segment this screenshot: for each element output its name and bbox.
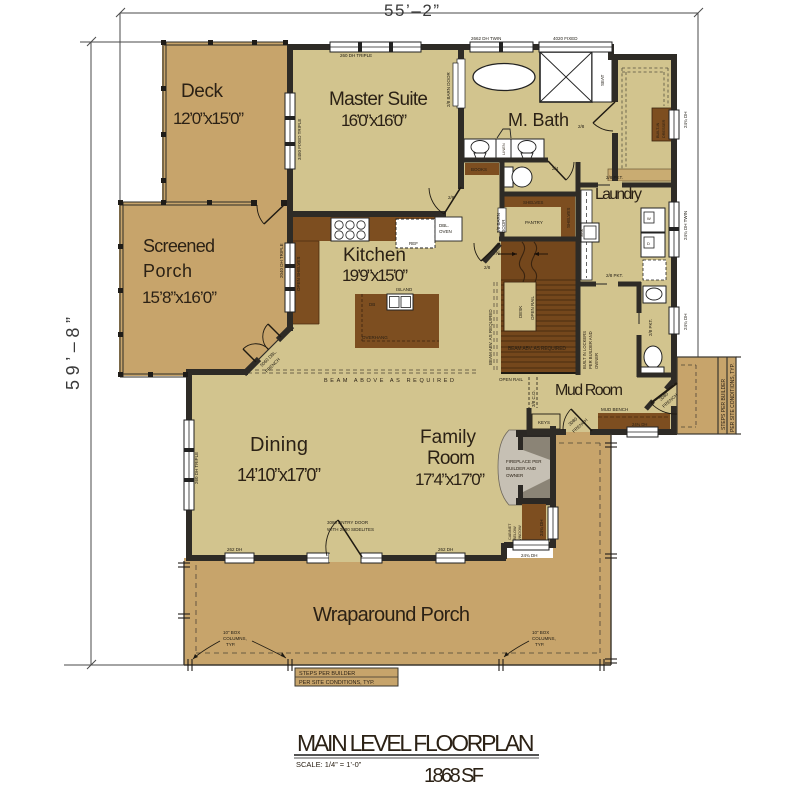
svg-text:OPEN SHELVES: OPEN SHELVES bbox=[296, 257, 301, 291]
svg-text:MAIN LEVEL FLOORPLAN: MAIN LEVEL FLOORPLAN bbox=[297, 730, 536, 756]
svg-text:DB: DB bbox=[369, 302, 375, 307]
svg-text:24¾ DH: 24¾ DH bbox=[683, 111, 688, 128]
svg-text:BEAM ABV. AS REQUIRED: BEAM ABV. AS REQUIRED bbox=[488, 309, 493, 365]
svg-text:Kitchen: Kitchen bbox=[343, 245, 406, 266]
svg-text:COLUMNS,: COLUMNS, bbox=[223, 636, 247, 641]
svg-text:260 DH TRIPLE: 260 DH TRIPLE bbox=[194, 452, 199, 484]
svg-text:OVEN: OVEN bbox=[439, 229, 452, 234]
svg-text:3/8 C.O.: 3/8 C.O. bbox=[531, 390, 536, 407]
svg-text:16’0”x16’0”: 16’0”x16’0” bbox=[341, 111, 407, 130]
svg-text:4020 FIXED: 4020 FIXED bbox=[553, 36, 578, 41]
svg-text:PER BUILDER AND: PER BUILDER AND bbox=[588, 331, 593, 369]
svg-text:WINDOW: WINDOW bbox=[518, 525, 522, 542]
svg-text:2662 DH TWIN: 2662 DH TWIN bbox=[471, 36, 501, 41]
svg-text:REF: REF bbox=[409, 241, 418, 246]
svg-text:BUILT IN LOCKERS: BUILT IN LOCKERS bbox=[582, 331, 587, 369]
svg-text:PER SITE CONDITIONS, TYP.: PER SITE CONDITIONS, TYP. bbox=[299, 680, 375, 686]
svg-text:BELOW: BELOW bbox=[513, 526, 517, 540]
svg-text:DESK: DESK bbox=[518, 306, 523, 318]
svg-text:BOOKS: BOOKS bbox=[471, 167, 487, 172]
svg-text:24¾ DH TWIN: 24¾ DH TWIN bbox=[683, 211, 688, 240]
svg-text:3450 FIXED TRIPLE: 3450 FIXED TRIPLE bbox=[297, 119, 302, 160]
svg-text:PER SITE CONDITIONS, TYP.: PER SITE CONDITIONS, TYP. bbox=[730, 363, 736, 432]
svg-text:24¾ DH: 24¾ DH bbox=[521, 553, 538, 558]
svg-text:SEAT: SEAT bbox=[600, 74, 605, 86]
svg-text:Wraparound Porch: Wraparound Porch bbox=[313, 604, 470, 626]
svg-text:Room: Room bbox=[427, 448, 475, 469]
svg-text:Porch: Porch bbox=[143, 261, 192, 281]
svg-text:19’9”x15’0”: 19’9”x15’0” bbox=[342, 266, 408, 285]
svg-text:10” BOX: 10” BOX bbox=[532, 630, 549, 635]
svg-text:D: D bbox=[647, 241, 650, 246]
svg-text:W: W bbox=[647, 216, 651, 221]
svg-text:M. Bath: M. Bath bbox=[508, 110, 569, 130]
svg-text:2/8: 2/8 bbox=[448, 195, 455, 200]
svg-text:PANTRY: PANTRY bbox=[525, 220, 543, 225]
svg-text:DRESSER: DRESSER bbox=[662, 119, 666, 138]
svg-text:24¾ DH: 24¾ DH bbox=[539, 519, 544, 536]
svg-text:WITH 2080 SIDELITES: WITH 2080 SIDELITES bbox=[327, 527, 374, 532]
svg-text:2/8: 2/8 bbox=[578, 124, 585, 129]
svg-text:BUILDER AND: BUILDER AND bbox=[506, 466, 537, 471]
svg-text:2/8: 2/8 bbox=[484, 265, 491, 270]
svg-text:Laundry: Laundry bbox=[595, 186, 642, 203]
svg-text:DBL.: DBL. bbox=[439, 223, 449, 228]
svg-text:24¾ DH: 24¾ DH bbox=[683, 313, 688, 330]
svg-text:FIREPLACE PER: FIREPLACE PER bbox=[506, 459, 542, 464]
svg-text:SCALE: 1/4” = 1’-0”: SCALE: 1/4” = 1’-0” bbox=[296, 760, 362, 769]
svg-text:DOOR: DOOR bbox=[501, 219, 506, 233]
svg-text:OPEN RAIL: OPEN RAIL bbox=[530, 295, 535, 320]
svg-text:262 DH: 262 DH bbox=[438, 547, 453, 552]
svg-text:SINK: SINK bbox=[580, 228, 584, 237]
svg-text:Screened: Screened bbox=[143, 236, 215, 256]
svg-text:BUILT-IN: BUILT-IN bbox=[656, 122, 660, 138]
svg-text:SHELVES: SHELVES bbox=[523, 200, 543, 205]
svg-text:COLUMNS,: COLUMNS, bbox=[532, 636, 556, 641]
svg-text:15’8”x16’0”: 15’8”x16’0” bbox=[142, 288, 217, 307]
svg-text:BEAM ABV. AS REQUIRED: BEAM ABV. AS REQUIRED bbox=[508, 346, 566, 352]
svg-text:260 DH TRIPLE: 260 DH TRIPLE bbox=[340, 53, 372, 58]
svg-text:TYP.: TYP. bbox=[226, 642, 235, 647]
svg-text:TYP.: TYP. bbox=[535, 642, 544, 647]
svg-text:10” BOX: 10” BOX bbox=[223, 630, 240, 635]
svg-text:OVERHANG: OVERHANG bbox=[362, 335, 388, 340]
svg-text:12’0”x15’0”: 12’0”x15’0” bbox=[173, 109, 244, 128]
svg-text:3080 ENTRY DOOR: 3080 ENTRY DOOR bbox=[327, 520, 369, 525]
svg-text:2040 DH TRIPLE: 2040 DH TRIPLE bbox=[279, 243, 284, 278]
svg-text:SHELVES: SHELVES bbox=[566, 208, 571, 228]
svg-text:262 DH: 262 DH bbox=[227, 547, 242, 552]
svg-text:2/4: 2/4 bbox=[552, 166, 559, 171]
svg-text:Family: Family bbox=[420, 427, 477, 448]
svg-text:17’4”x17’0”: 17’4”x17’0” bbox=[415, 470, 485, 489]
svg-text:55’–2”: 55’–2” bbox=[384, 1, 440, 20]
svg-text:1868 SF: 1868 SF bbox=[424, 765, 484, 787]
svg-text:MUD BENCH: MUD BENCH bbox=[601, 407, 628, 412]
svg-text:STEPS PER BUILDER: STEPS PER BUILDER bbox=[299, 671, 355, 677]
svg-text:2/8 PKT.: 2/8 PKT. bbox=[606, 175, 623, 180]
svg-text:LINEN: LINEN bbox=[501, 143, 506, 155]
svg-text:Mud Room: Mud Room bbox=[555, 382, 623, 399]
svg-text:OWNER: OWNER bbox=[594, 353, 599, 369]
svg-text:Deck: Deck bbox=[181, 81, 224, 102]
svg-text:KEYS: KEYS bbox=[538, 420, 550, 425]
svg-text:2/8 PKT.: 2/8 PKT. bbox=[648, 319, 653, 336]
svg-text:Master Suite: Master Suite bbox=[329, 89, 428, 110]
svg-text:Dining: Dining bbox=[250, 434, 308, 456]
svg-text:ISLAND: ISLAND bbox=[396, 287, 413, 292]
svg-text:14’10”x17’0”: 14’10”x17’0” bbox=[237, 465, 321, 485]
svg-text:BEAM ABOVE AS REQUIRED: BEAM ABOVE AS REQUIRED bbox=[324, 378, 454, 384]
svg-text:OWNER: OWNER bbox=[506, 473, 524, 478]
svg-text:2/8 BARN DOOR: 2/8 BARN DOOR bbox=[446, 71, 451, 107]
svg-text:STEPS PER BUILDER: STEPS PER BUILDER bbox=[721, 378, 727, 430]
svg-text:CABINET: CABINET bbox=[508, 523, 512, 540]
svg-text:24¾ DH: 24¾ DH bbox=[632, 422, 647, 427]
svg-text:2/8 PKT.: 2/8 PKT. bbox=[606, 273, 623, 278]
svg-text:OPEN RAIL: OPEN RAIL bbox=[499, 377, 524, 382]
